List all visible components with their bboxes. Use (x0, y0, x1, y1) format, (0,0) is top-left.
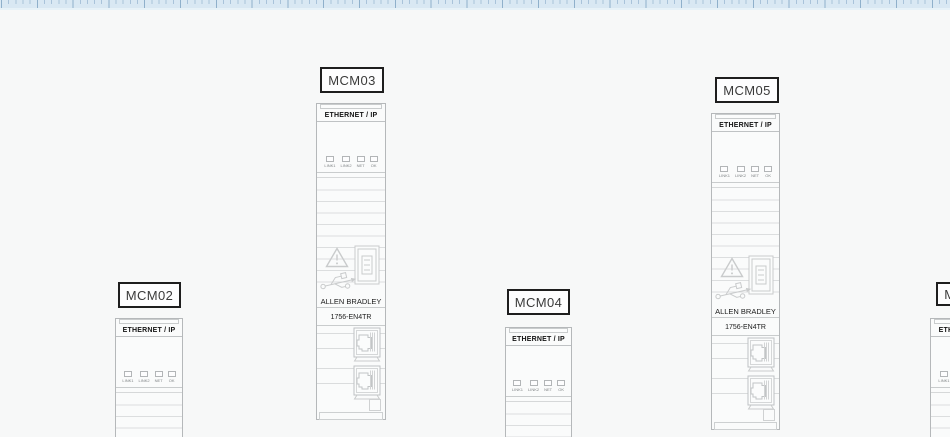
led-label: LINK2 (735, 173, 746, 178)
module-base (319, 412, 383, 420)
led-row: LINK1 LINK2 NET OK (712, 166, 779, 178)
led-square (140, 371, 148, 377)
led-square (530, 380, 538, 386)
led-label: LINK1 (719, 173, 730, 178)
led-label: NET (751, 173, 759, 178)
led-indicator-section: LINK1 LINK2 NET OK (712, 132, 779, 183)
module-thin-band (931, 389, 950, 393)
ethernet-port-2 (712, 371, 779, 409)
led-indicator: OK (557, 380, 565, 392)
led-square (720, 166, 728, 172)
model-number-label: 1756-EN4TR (712, 318, 779, 336)
ethernet-port-icon (349, 327, 383, 363)
ethernet-module-mcm04[interactable]: ETHERNET / IP LINK1 LINK2 NET (505, 327, 572, 437)
notch-step (369, 399, 381, 411)
usb-icon (713, 277, 753, 303)
ethernet-module-mcm05[interactable]: ETHERNET / IP LINK1 LINK2 NET (711, 113, 780, 430)
module-divider-bands (506, 403, 571, 437)
horizontal-ruler (0, 0, 950, 8)
led-label: OK (765, 173, 771, 178)
ethernet-port-icon (743, 375, 777, 411)
ethernet-ip-label: ETHERNET / IP (712, 119, 779, 132)
warning-triangle-icon (325, 247, 349, 268)
led-indicator-section: LINK1 LINK2 NET OK (506, 346, 571, 397)
led-indicator: OK (168, 371, 176, 383)
module-tag-label-mcm05[interactable]: MCM05 (715, 77, 779, 103)
module-divider-bands (931, 394, 950, 437)
led-indicator: LINK1 (512, 380, 523, 392)
led-square (737, 166, 745, 172)
led-indicator-section: LINK1 LINK2 NET OK (116, 337, 182, 388)
led-square (751, 166, 759, 172)
led-indicator: NET (155, 371, 163, 383)
led-square (370, 156, 378, 162)
led-square (764, 166, 772, 172)
led-label: OK (169, 378, 175, 383)
ethernet-port-2 (317, 361, 385, 399)
module-icons (317, 244, 385, 293)
brand-label: ALLEN BRADLEY (712, 303, 779, 318)
led-square (326, 156, 334, 162)
led-row: LINK1 LINK2 NET OK (317, 156, 385, 168)
module-tag-label-mcm06[interactable]: MCM06 (936, 282, 950, 306)
module-notch-section (317, 399, 385, 412)
led-row: LINK1 LINK2 NET OK (931, 371, 950, 383)
led-indicator: NET (751, 166, 759, 178)
led-indicator: OK (370, 156, 378, 168)
warning-triangle-icon (720, 257, 744, 278)
led-indicator: NET (544, 380, 552, 392)
ethernet-ip-label: ETHERNET / IP (931, 324, 950, 337)
led-label: OK (371, 163, 377, 168)
led-label: LINK2 (341, 163, 352, 168)
led-indicator: LINK1 (938, 371, 949, 383)
ruler-edge-strip (0, 8, 950, 10)
led-indicator: LINK1 (122, 371, 133, 383)
led-label: LINK2 (528, 387, 539, 392)
led-label: NET (357, 163, 365, 168)
led-label: LINK1 (938, 378, 949, 383)
led-label: LINK2 (139, 378, 150, 383)
module-base (714, 422, 777, 430)
ethernet-port-icon (349, 365, 383, 401)
ethernet-port-1 (712, 336, 779, 371)
module-tag-text: MCM04 (515, 295, 563, 310)
ethernet-port-1 (317, 326, 385, 361)
led-indicator: LINK1 (719, 166, 730, 178)
led-indicator: LINK2 (528, 380, 539, 392)
led-label: NET (155, 378, 163, 383)
drawing-canvas[interactable]: MCM02 ETHERNET / IP LINK1 LINK2 NET (0, 0, 950, 437)
ethernet-port-icon (743, 337, 777, 373)
ethernet-ip-label: ETHERNET / IP (116, 324, 182, 337)
led-label: NET (544, 387, 552, 392)
module-tag-text: MCM06 (944, 287, 950, 302)
module-thin-band (712, 184, 779, 188)
ethernet-module-mcm06[interactable]: ETHERNET / IP LINK1 LINK2 NET (930, 318, 950, 437)
led-square (155, 371, 163, 377)
led-indicator: LINK2 (139, 371, 150, 383)
module-icons (712, 254, 779, 303)
led-square (557, 380, 565, 386)
brand-label: ALLEN BRADLEY (317, 293, 385, 308)
module-tag-label-mcm04[interactable]: MCM04 (507, 289, 570, 315)
led-square (544, 380, 552, 386)
led-indicator: OK (764, 166, 772, 178)
ethernet-module-mcm03[interactable]: ETHERNET / IP LINK1 LINK2 NET (316, 103, 386, 420)
led-label: OK (558, 387, 564, 392)
led-indicator-section: LINK1 LINK2 NET OK (317, 122, 385, 173)
led-square (357, 156, 365, 162)
module-divider-bands (116, 394, 182, 437)
module-tag-label-mcm03[interactable]: MCM03 (320, 67, 384, 93)
led-indicator-section: LINK1 LINK2 NET OK (931, 337, 950, 388)
module-notch-section (712, 409, 779, 422)
led-indicator: NET (357, 156, 365, 168)
module-tag-text: MCM03 (328, 73, 376, 88)
led-indicator: LINK1 (324, 156, 335, 168)
led-square (124, 371, 132, 377)
module-thin-band (506, 398, 571, 402)
led-label: LINK1 (512, 387, 523, 392)
led-square (342, 156, 350, 162)
led-row: LINK1 LINK2 NET OK (116, 371, 182, 383)
module-tag-label-mcm02[interactable]: MCM02 (118, 282, 181, 308)
module-tag-text: MCM02 (126, 288, 174, 303)
led-label: LINK1 (324, 163, 335, 168)
ethernet-ip-label: ETHERNET / IP (506, 333, 571, 346)
led-label: LINK1 (122, 378, 133, 383)
usb-icon (318, 267, 358, 293)
module-thin-band (116, 389, 182, 393)
ethernet-ip-label: ETHERNET / IP (317, 109, 385, 122)
module-tag-text: MCM05 (723, 83, 771, 98)
led-square (940, 371, 948, 377)
led-indicator: LINK2 (341, 156, 352, 168)
notch-step (763, 409, 775, 421)
model-number-label: 1756-EN4TR (317, 308, 385, 326)
led-square (168, 371, 176, 377)
ethernet-module-mcm02[interactable]: ETHERNET / IP LINK1 LINK2 NET (115, 318, 183, 437)
led-square (513, 380, 521, 386)
module-thin-band (317, 174, 385, 178)
led-row: LINK1 LINK2 NET OK (506, 380, 571, 392)
led-indicator: LINK2 (735, 166, 746, 178)
